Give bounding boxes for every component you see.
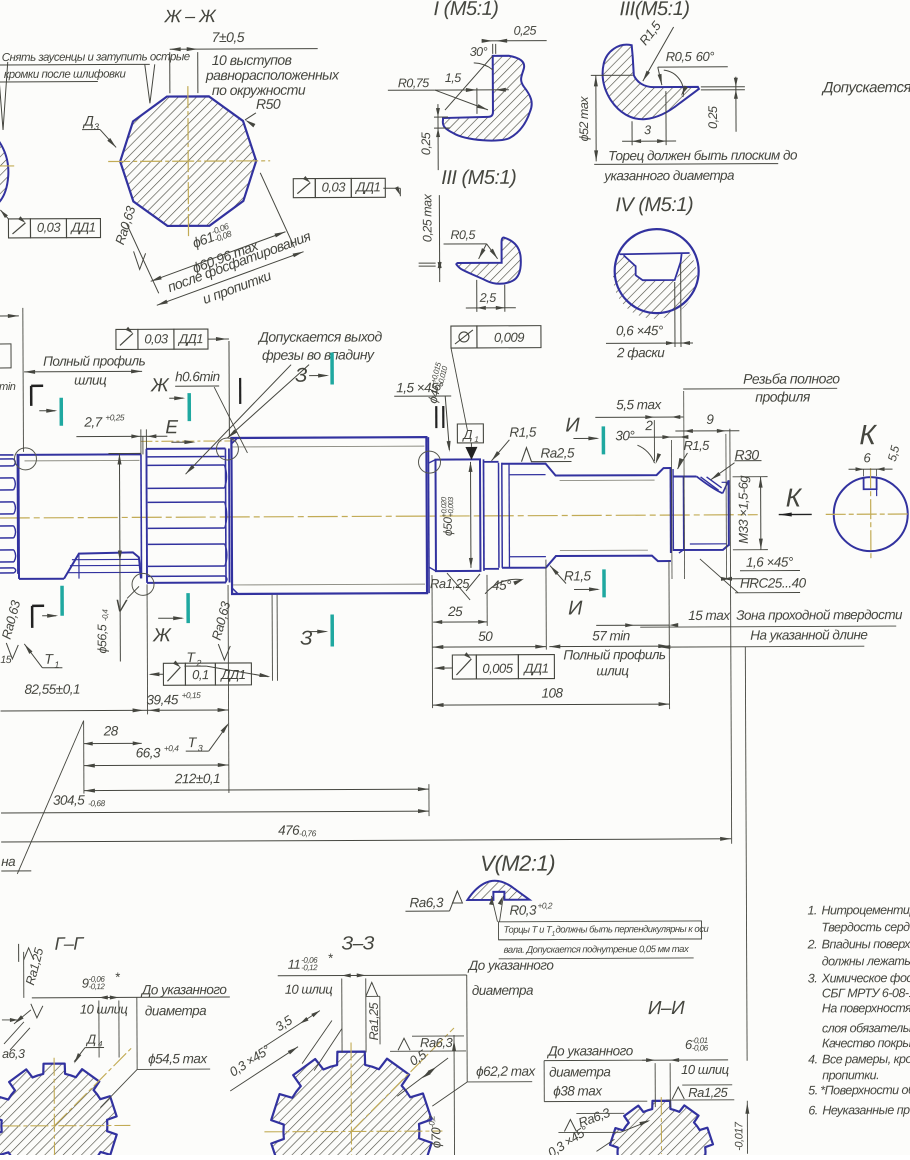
- svg-text:должны лежать в зоне вып: должны лежать в зоне вып: [822, 954, 910, 969]
- svg-text:-0,06: -0,06: [692, 1043, 709, 1052]
- svg-text:ϕ56,5: ϕ56,5: [95, 624, 109, 653]
- svg-text:III (М5:1): III (М5:1): [441, 167, 516, 189]
- svg-text:Д: Д: [461, 427, 472, 442]
- svg-text:Качество покрытия прове: Качество покрытия прове: [822, 1036, 910, 1051]
- svg-text:0,25: 0,25: [419, 132, 433, 155]
- svg-text:кромки после шлифовки: кромки после шлифовки: [4, 68, 127, 81]
- svg-text:0,1: 0,1: [192, 667, 209, 682]
- svg-text:шлиц: шлиц: [74, 373, 107, 388]
- svg-text:Ж – Ж: Ж – Ж: [164, 6, 218, 26]
- svg-text:R0,3: R0,3: [509, 903, 537, 918]
- svg-text:1.: 1.: [807, 903, 816, 917]
- svg-text:2.: 2.: [807, 937, 817, 951]
- svg-text:З: З: [300, 628, 312, 650]
- svg-text:I (М5:1): I (М5:1): [433, 0, 498, 20]
- svg-text:2,7: 2,7: [83, 415, 102, 430]
- svg-text:7±0,5: 7±0,5: [212, 29, 245, 45]
- svg-text:Торец должен быть плоским до: Торец должен быть плоским до: [608, 147, 798, 163]
- svg-text:HRC25...40: HRC25...40: [740, 575, 807, 590]
- svg-text:Полный профиль: Полный профиль: [563, 647, 666, 662]
- svg-text:З: З: [295, 365, 307, 387]
- svg-text:+0,25: +0,25: [105, 412, 125, 422]
- svg-text:60°: 60°: [696, 49, 715, 64]
- svg-text:3.: 3.: [808, 971, 817, 985]
- svg-text:Д: Д: [82, 113, 94, 129]
- svg-text:Резьба полного: Резьба полного: [743, 370, 840, 386]
- svg-text:диаметра: диаметра: [472, 983, 534, 998]
- svg-text:10 шлиц: 10 шлиц: [80, 1001, 127, 1016]
- svg-text:R0,75: R0,75: [398, 76, 429, 90]
- svg-text:Е: Е: [165, 417, 178, 438]
- svg-text:R1,5: R1,5: [564, 568, 592, 583]
- svg-text:пропитки.: пропитки.: [822, 1068, 879, 1082]
- svg-text:До указанного: До указанного: [467, 958, 555, 973]
- svg-text:И: И: [565, 414, 580, 436]
- svg-text:ДД1: ДД1: [219, 667, 245, 682]
- svg-text:ДД1: ДД1: [177, 331, 203, 346]
- svg-text:ДД1: ДД1: [354, 179, 380, 194]
- svg-text:З–З: З–З: [342, 933, 375, 954]
- svg-text:Ra2,5: Ra2,5: [540, 445, 575, 460]
- svg-text:Допускается: Допускается: [821, 79, 910, 96]
- svg-text:И–И: И–И: [648, 998, 685, 1019]
- svg-text:R0,5: R0,5: [666, 49, 693, 64]
- svg-text:+0,4: +0,4: [164, 743, 179, 753]
- svg-text:108: 108: [541, 686, 563, 701]
- svg-text:0,005: 0,005: [482, 661, 513, 676]
- svg-text:Д: Д: [85, 1032, 96, 1047]
- svg-text:min: min: [0, 381, 16, 393]
- svg-text:IV (М5:1): IV (М5:1): [615, 194, 693, 216]
- svg-text:И: И: [568, 597, 583, 619]
- svg-text:-0,4: -0,4: [101, 608, 110, 621]
- svg-text:a6,3: a6,3: [2, 1047, 25, 1061]
- svg-text:До указанного: До указанного: [140, 982, 228, 997]
- svg-text:равнорасположенных: равнорасположенных: [205, 66, 340, 83]
- svg-text:9: 9: [706, 412, 714, 427]
- svg-text:ϕ54,5 max: ϕ54,5 max: [148, 1051, 208, 1066]
- svg-text:66,3: 66,3: [136, 745, 161, 760]
- svg-text:212±0,1: 212±0,1: [174, 771, 220, 786]
- svg-text:Г–Г: Г–Г: [55, 934, 85, 954]
- svg-text:R0,5: R0,5: [450, 228, 475, 242]
- svg-text:R1,5: R1,5: [509, 425, 537, 440]
- svg-text:5.: 5.: [808, 1083, 817, 1097]
- svg-text:Твердость сердцевины HRC: Твердость сердцевины HRC: [822, 920, 910, 935]
- svg-text:диаметра: диаметра: [145, 1003, 207, 1018]
- svg-text:0,25: 0,25: [514, 24, 537, 38]
- svg-text:0,25: 0,25: [706, 106, 720, 129]
- svg-text:III(М5:1): III(М5:1): [619, 0, 689, 20]
- svg-text:4.: 4.: [808, 1052, 817, 1066]
- svg-text:М33 ×1,5-6g: М33 ×1,5-6g: [736, 475, 751, 544]
- svg-text:R50: R50: [256, 96, 281, 112]
- svg-text:30°: 30°: [615, 428, 635, 443]
- svg-text:ϕ38 max: ϕ38 max: [553, 1083, 603, 1098]
- svg-text:5,5 max: 5,5 max: [616, 397, 662, 412]
- svg-text:R1,5: R1,5: [683, 438, 710, 453]
- svg-text:Неуказанные предельные о: Неуказанные предельные о: [822, 1103, 910, 1118]
- svg-text:Ra1,25: Ra1,25: [688, 1085, 728, 1100]
- svg-text:ДД1: ДД1: [522, 661, 548, 676]
- svg-text:Впадины поверхностей Б и В: Впадины поверхностей Б и В: [822, 937, 910, 952]
- svg-text:СБГ МРТУ 6-08-12-64. На по: СБГ МРТУ 6-08-12-64. На по: [822, 986, 910, 1001]
- svg-text:2: 2: [644, 418, 653, 433]
- svg-text:82,55±0,1: 82,55±0,1: [24, 682, 80, 697]
- svg-text:0,03: 0,03: [37, 220, 62, 235]
- svg-text:должны быть перпендикулярны к: должны быть перпендикулярны к оси: [556, 924, 710, 936]
- svg-text:V(М2:1): V(М2:1): [480, 851, 555, 876]
- svg-text:15 max: 15 max: [688, 608, 731, 623]
- svg-text:вала. Допускается поднутрение: вала. Допускается поднутрение 0,05 мм ma…: [504, 944, 690, 956]
- svg-text:304,5: 304,5: [53, 793, 85, 808]
- svg-text:6.: 6.: [808, 1103, 817, 1117]
- svg-text:-0,68: -0,68: [88, 798, 105, 808]
- svg-text:слоя обязательно. Допуска: слоя обязательно. Допуска: [822, 1021, 910, 1036]
- svg-text:Допускается выход: Допускается выход: [257, 328, 383, 345]
- svg-text:-0,12: -0,12: [89, 982, 106, 991]
- svg-text:+0,003: +0,003: [446, 496, 455, 517]
- svg-text:476: 476: [278, 823, 300, 838]
- svg-text:39,45: 39,45: [147, 692, 179, 707]
- svg-text:11: 11: [288, 957, 301, 972]
- svg-text:ϕ52 max: ϕ52 max: [577, 96, 591, 142]
- svg-text:0,03: 0,03: [144, 331, 169, 346]
- svg-text:Химическое фосфатирование: Химическое фосфатирование: [821, 971, 910, 986]
- svg-text:0,25 max: 0,25 max: [420, 193, 434, 242]
- svg-text:50: 50: [478, 629, 493, 644]
- svg-text:На указанной длине: На указанной длине: [750, 627, 867, 643]
- svg-text:На поверхностях, указанны: На поверхностях, указанны: [822, 1001, 910, 1016]
- svg-text:К: К: [786, 482, 803, 512]
- svg-text:-0,017: -0,017: [733, 1121, 745, 1151]
- svg-text:Зона проходной твердости: Зона проходной твердости: [736, 607, 903, 623]
- svg-text:3: 3: [644, 123, 651, 137]
- svg-text:Все рамеры, кроме оговор: Все рамеры, кроме оговор: [822, 1052, 910, 1067]
- svg-text:-0,76: -0,76: [299, 828, 316, 838]
- svg-text:-0,12: -0,12: [301, 963, 318, 972]
- svg-text:ϕ50: ϕ50: [441, 517, 455, 536]
- svg-text:30°: 30°: [470, 45, 488, 59]
- svg-text:1,5: 1,5: [445, 71, 461, 85]
- svg-text:1: 1: [474, 435, 478, 444]
- svg-text:Торцы Т и Т: Торцы Т и Т: [504, 925, 554, 936]
- svg-text:-0,2: -0,2: [427, 1115, 436, 1128]
- svg-text:профиля: профиля: [755, 388, 811, 404]
- svg-text:К: К: [859, 419, 877, 450]
- svg-text:Нитроцементировать h 0,3: Нитроцементировать h 0,3: [821, 903, 910, 918]
- svg-text:Ra6,3: Ra6,3: [409, 895, 444, 910]
- svg-text:1,6 ×45°: 1,6 ×45°: [746, 555, 794, 570]
- svg-text:указанного диаметра: указанного диаметра: [603, 168, 735, 184]
- svg-text:2,5: 2,5: [479, 291, 496, 305]
- svg-text:15: 15: [0, 654, 11, 666]
- svg-text:ϕ70: ϕ70: [428, 1127, 443, 1149]
- svg-text:10 шлиц: 10 шлиц: [285, 982, 332, 997]
- svg-text:До указанного: До указанного: [546, 1043, 634, 1058]
- svg-text:10 шлиц: 10 шлиц: [681, 1062, 728, 1077]
- svg-text:+0,15: +0,15: [182, 690, 202, 700]
- svg-text:Ra1,25: Ra1,25: [430, 576, 470, 591]
- svg-text:10 выступов: 10 выступов: [212, 52, 292, 68]
- svg-text:Ж: Ж: [150, 375, 170, 396]
- svg-text:+0,2: +0,2: [537, 901, 552, 911]
- svg-text:диаметра: диаметра: [549, 1064, 611, 1079]
- svg-text:0,03: 0,03: [322, 179, 347, 194]
- svg-text:фрезы во впадину: фрезы во впадину: [262, 346, 375, 362]
- svg-text:ϕ62,2 max: ϕ62,2 max: [476, 1064, 536, 1079]
- svg-text:на: на: [1, 854, 16, 869]
- svg-text:Снять заусенцы и затупить остр: Снять заусенцы и затупить острые: [2, 51, 190, 64]
- svg-text:Ж: Ж: [152, 625, 172, 646]
- svg-text:Ra1,25: Ra1,25: [367, 1002, 381, 1040]
- svg-text:ДД1: ДД1: [69, 220, 95, 235]
- svg-text:Ra6,3: Ra6,3: [420, 1035, 454, 1050]
- svg-text:*Поверхности обрабатыв: *Поверхности обрабатыв: [820, 1083, 910, 1098]
- svg-text:шлиц: шлиц: [596, 663, 629, 678]
- svg-text:57 min: 57 min: [592, 628, 630, 643]
- svg-text:28: 28: [103, 723, 119, 738]
- svg-text:0,009: 0,009: [494, 330, 524, 345]
- svg-text:25: 25: [447, 604, 463, 619]
- svg-text:Полный профиль: Полный профиль: [43, 353, 146, 368]
- svg-text:0,6 ×45°: 0,6 ×45°: [616, 323, 664, 338]
- svg-text:2 фаски: 2 фаски: [616, 345, 665, 360]
- svg-text:h0.6min: h0.6min: [175, 369, 220, 384]
